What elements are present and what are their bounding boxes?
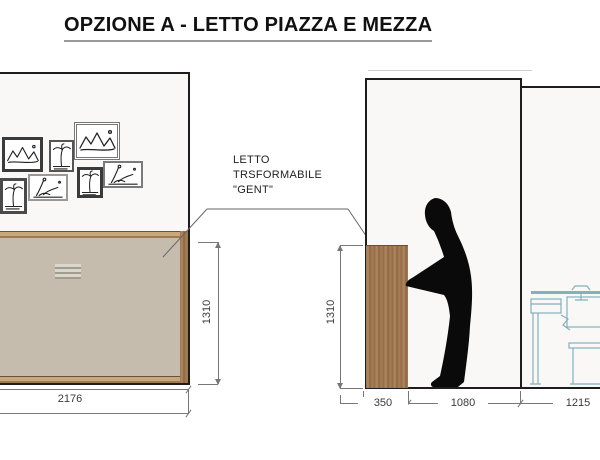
mountain-sketch-icon [77, 125, 117, 157]
palm-sketch-icon [51, 142, 72, 170]
bed-bottom-edge [0, 376, 180, 383]
dim-line-front-height [218, 242, 219, 384]
picture-frame [28, 174, 68, 201]
dim-line-side-height [340, 245, 341, 388]
bed-handle [55, 264, 81, 279]
picture-frame [0, 178, 27, 214]
dim-side-clearance: 1080 [438, 397, 488, 409]
dim-connector [340, 395, 341, 403]
dim-line-outer [0, 413, 189, 414]
dim-arrow-icon [337, 245, 343, 251]
leader-line [160, 204, 382, 260]
ceiling-line [368, 70, 532, 71]
standing-person-silhouette-icon [402, 196, 482, 390]
picture-frame [103, 161, 143, 188]
dim-ext-bottom [340, 388, 363, 389]
desk-and-bench-outline-icon [525, 285, 600, 389]
dim-tick-icon [186, 410, 192, 418]
bed-top-edge [0, 231, 187, 238]
picture-frame [49, 140, 74, 172]
bed-front-panel [0, 238, 180, 376]
dim-side-zone: 1215 [553, 397, 600, 409]
dim-connector [188, 389, 189, 413]
annotation-label: LETTO TRSFORMABILE "GENT" [233, 153, 322, 198]
picture-frame [2, 137, 43, 172]
dim-arrow-icon [337, 383, 343, 389]
annotation-line: "GENT" [233, 183, 322, 198]
mountain-sketch-icon [5, 140, 40, 169]
page-title: OPZIONE A - LETTO PIAZZA E MEZZA [64, 14, 432, 42]
dim-front-height: 1310 [201, 292, 213, 332]
flower-sketch-icon [105, 163, 141, 186]
dim-line-front-width [0, 389, 189, 390]
annotation-line: TRSFORMABILE [233, 168, 322, 183]
palm-sketch-icon [3, 181, 24, 211]
dim-ext-top [340, 245, 363, 246]
dim-front-width: 2176 [40, 393, 100, 405]
annotation-line: LETTO [233, 153, 322, 168]
flower-sketch-icon [30, 176, 66, 199]
dim-arrow-icon [215, 379, 221, 385]
dim-side-depth: 350 [358, 397, 408, 409]
picture-frame [77, 167, 103, 198]
palm-sketch-icon [80, 170, 100, 195]
dim-side-height: 1310 [325, 292, 337, 332]
picture-frame [74, 122, 120, 160]
drawing-canvas: OPZIONE A - LETTO PIAZZA E MEZZA 1310 21… [0, 0, 600, 460]
